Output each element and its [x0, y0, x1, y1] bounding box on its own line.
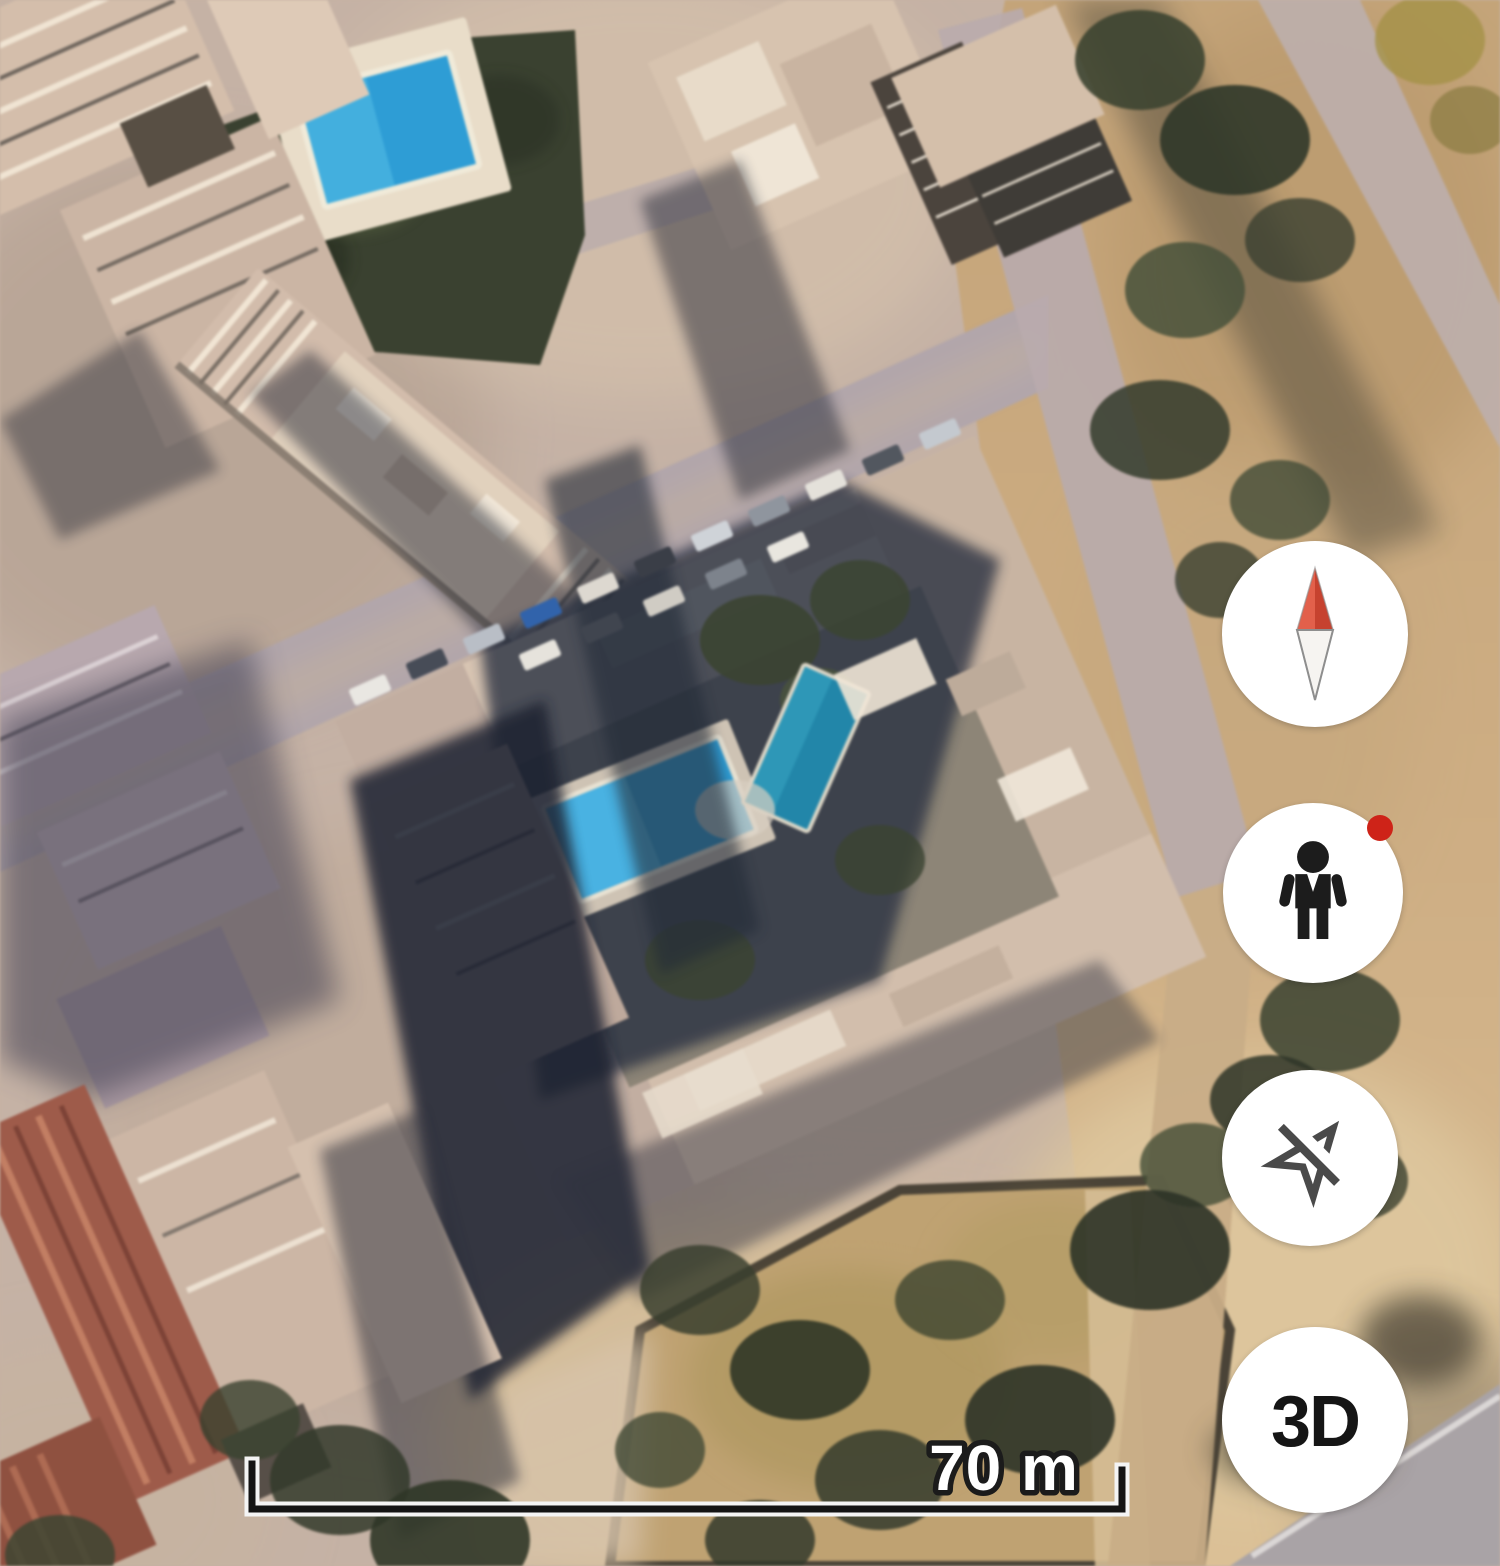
compass-button[interactable] [1222, 541, 1408, 727]
location-disabled-icon [1258, 1106, 1362, 1210]
compass-icon [1284, 564, 1346, 704]
street-view-notification-badge [1366, 814, 1394, 842]
3d-button-label: 3D [1271, 1382, 1359, 1462]
3d-button-icon: 3D [1222, 1327, 1408, 1513]
pegman-icon [1254, 834, 1372, 952]
3d-toggle-button[interactable]: 3D [1222, 1327, 1408, 1513]
maps-satellite-screen: 3D 70 m [0, 0, 1500, 1566]
my-location-disabled-button[interactable] [1222, 1070, 1398, 1246]
